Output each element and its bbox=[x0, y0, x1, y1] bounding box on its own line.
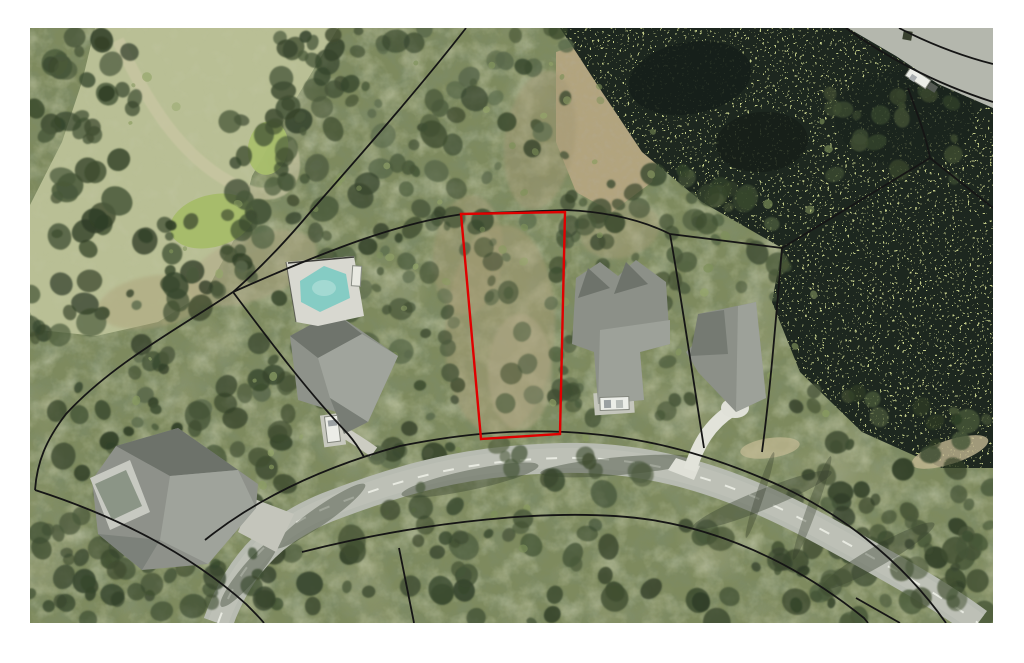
swimming-pool bbox=[286, 256, 364, 326]
aerial-scene-svg bbox=[30, 28, 993, 623]
scene-root bbox=[30, 28, 993, 623]
page-margin bbox=[0, 0, 1024, 663]
car-house3 bbox=[600, 396, 629, 410]
aerial-photo bbox=[30, 28, 993, 623]
car-pool-lot bbox=[324, 415, 340, 442]
